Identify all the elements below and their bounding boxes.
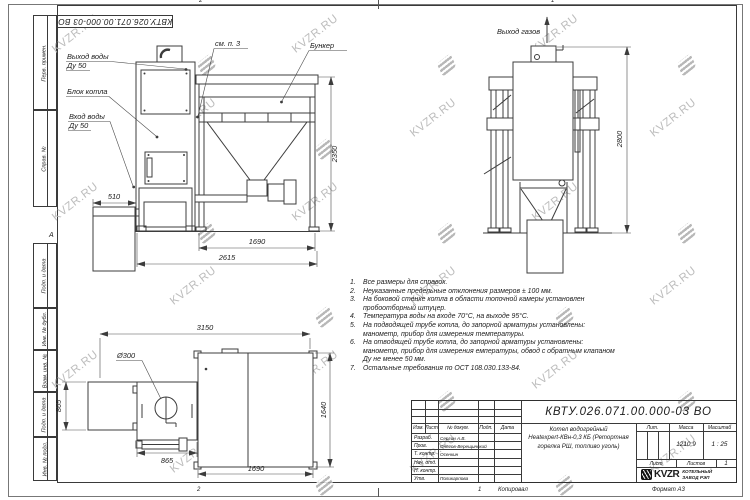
tb-name: Поликарпова: [440, 476, 468, 481]
note-item: 1. Все размеры для справок.: [346, 279, 620, 288]
drawing-sheet: KVZR.RUKVZR.RUKVZR.RUKVZR.RUKVZR.RUKVZR.…: [0, 0, 750, 500]
dim-plan-boiler: 865: [161, 456, 174, 465]
note-number: 3.: [346, 296, 363, 313]
tb-role: Пров.: [414, 443, 427, 449]
company-name: КОТЕЛЬНЫЙ ЗАВОД РЭП: [682, 469, 712, 479]
product-name: Котел водогрейный Heatexpert-КВн-0,3 КБ …: [521, 426, 636, 451]
label-gas-outlet: Выход газов: [497, 27, 540, 36]
note-number: 5.: [346, 322, 363, 339]
label-see-note: см. п. 3: [215, 39, 241, 48]
zone-letter: А: [49, 232, 54, 239]
format-label: Формат А3: [652, 487, 685, 493]
label-water-outlet-line2: Ду 50: [66, 61, 87, 70]
fold-tick-top: [378, 0, 379, 9]
tb-role: Утв.: [414, 476, 425, 482]
note-text: На боковой стенке котла в области топочн…: [363, 296, 620, 313]
zone-mark-top-right: 1: [551, 0, 554, 4]
label-bunker: Бункер: [310, 41, 334, 50]
note-text: На подводящей трубе котла, до запорной а…: [363, 322, 620, 339]
notes-list: 1. Все размеры для справок. 2. Неуказанн…: [346, 279, 620, 374]
front-view: 2350 510 1690 2615 Выход воды Ду 50 Бл: [66, 39, 347, 271]
company-name-line1: КОТЕЛЬНЫЙ: [682, 469, 712, 474]
dim-front-ashbox: 510: [108, 192, 121, 201]
dim-plan-flue: Ø300: [116, 351, 136, 360]
note-text: Остальные требования по ОСТ 108.030.133-…: [363, 365, 620, 374]
tb-name: Онегов-Верещинский: [440, 444, 487, 449]
rotated-docnumber: КВТУ.026.071.00.000-03 ВО: [58, 17, 172, 26]
note-item: 6. На отводящей трубе котла, до запорной…: [346, 339, 620, 365]
note-text: Все размеры для справок.: [363, 279, 620, 288]
tb-name: Осенкин: [440, 452, 458, 457]
product-name-line3: горелка РШ, топливо уголь): [521, 443, 636, 451]
note-number: 2.: [346, 288, 363, 297]
tb-role: Нач. отд.: [414, 460, 436, 466]
note-item: 5. На подводящей трубе котла, до запорно…: [346, 322, 620, 339]
dim-side-height: 2800: [615, 130, 624, 148]
dim-front-height: 2350: [330, 145, 339, 163]
tb-header-date: Дата: [494, 425, 521, 431]
dim-plan-left: 865: [54, 399, 63, 412]
scale-value: 1 : 25: [703, 441, 736, 448]
dim-front-total: 2615: [218, 253, 236, 262]
tb-header-doc: № докум.: [438, 425, 478, 431]
note-number: 6.: [346, 339, 363, 365]
title-block: Изм. Лист № докум. Подп. Дата Разраб. Се…: [411, 400, 737, 483]
plan-view: Ø300 3150 865: [54, 323, 334, 478]
kvzr-logo-text: KVZR: [654, 469, 679, 480]
dim-plan-depth: 1640: [319, 401, 328, 418]
note-item: 7. Остальные требования по ОСТ 108.030.1…: [346, 365, 620, 374]
note-item: 2. Неуказанные предельные отклонения раз…: [346, 288, 620, 297]
tb-name: Сергин А.В.: [440, 436, 466, 441]
note-item: 4. Температура воды на входе 70°С, на вы…: [346, 313, 620, 322]
tb-role: Разраб.: [414, 435, 432, 441]
tb-role: Н. контр.: [414, 468, 437, 474]
zone-mark-top-left: 2: [199, 0, 202, 4]
note-number: 1.: [346, 279, 363, 288]
side-view: Выход газов 2800: [483, 17, 631, 273]
dim-front-bunker: 1690: [249, 237, 266, 246]
note-text: Температура воды на входе 70°С, на выход…: [363, 313, 620, 322]
sheets-value: 1: [716, 461, 736, 467]
mass-value: 1210,9: [669, 441, 703, 448]
copied-label: Копировал: [498, 487, 528, 493]
label-water-outlet-line1: Выход воды: [67, 52, 109, 61]
note-item: 3. На боковой стенке котла в области топ…: [346, 296, 620, 313]
tb-header-izm: Изм.: [412, 425, 425, 431]
rotated-docnumber-box: КВТУ.026.071.00.000-03 ВО: [57, 15, 173, 28]
product-name-line1: Котел водогрейный: [521, 426, 636, 434]
title-doc-number: КВТУ.026.071.00.000-03 ВО: [521, 401, 736, 423]
label-water-inlet-line1: Вход воды: [69, 112, 105, 121]
note-text: На отводящей трубе котла, до запорной ар…: [363, 339, 620, 365]
tb-header-scale: Масштаб: [703, 425, 736, 431]
tb-header-sheet: Лист: [636, 461, 676, 467]
tb-header-mass: Масса: [669, 425, 703, 431]
kvzr-logo-icon: [641, 469, 652, 480]
label-boiler-block: Блок котла: [67, 87, 108, 96]
zone-mark-bottom-left: 2: [197, 487, 200, 493]
note-number: 4.: [346, 313, 363, 322]
tb-header-sign: Подп.: [478, 425, 494, 431]
tb-header-sheets: Листов: [676, 461, 716, 467]
company-cell: KVZR КОТЕЛЬНЫЙ ЗАВОД РЭП: [636, 467, 736, 482]
company-name-line2: ЗАВОД РЭП: [682, 475, 712, 480]
dim-plan-bunker: 1690: [248, 464, 265, 473]
label-water-inlet-line2: Ду 50: [68, 121, 89, 130]
fold-tick-bottom: [378, 488, 379, 497]
tb-role: Т. контр.: [414, 451, 436, 457]
note-number: 7.: [346, 365, 363, 374]
zone-mark-bottom-right: 1: [478, 487, 481, 493]
dim-plan-total: 3150: [197, 323, 214, 332]
tb-header-lit: Лит.: [636, 425, 669, 431]
note-text: Неуказанные предельные отклонения размер…: [363, 288, 620, 297]
product-name-line2: Heatexpert-КВн-0,3 КБ (Ретортная: [521, 434, 636, 442]
tb-header-list: Лист: [425, 425, 438, 431]
